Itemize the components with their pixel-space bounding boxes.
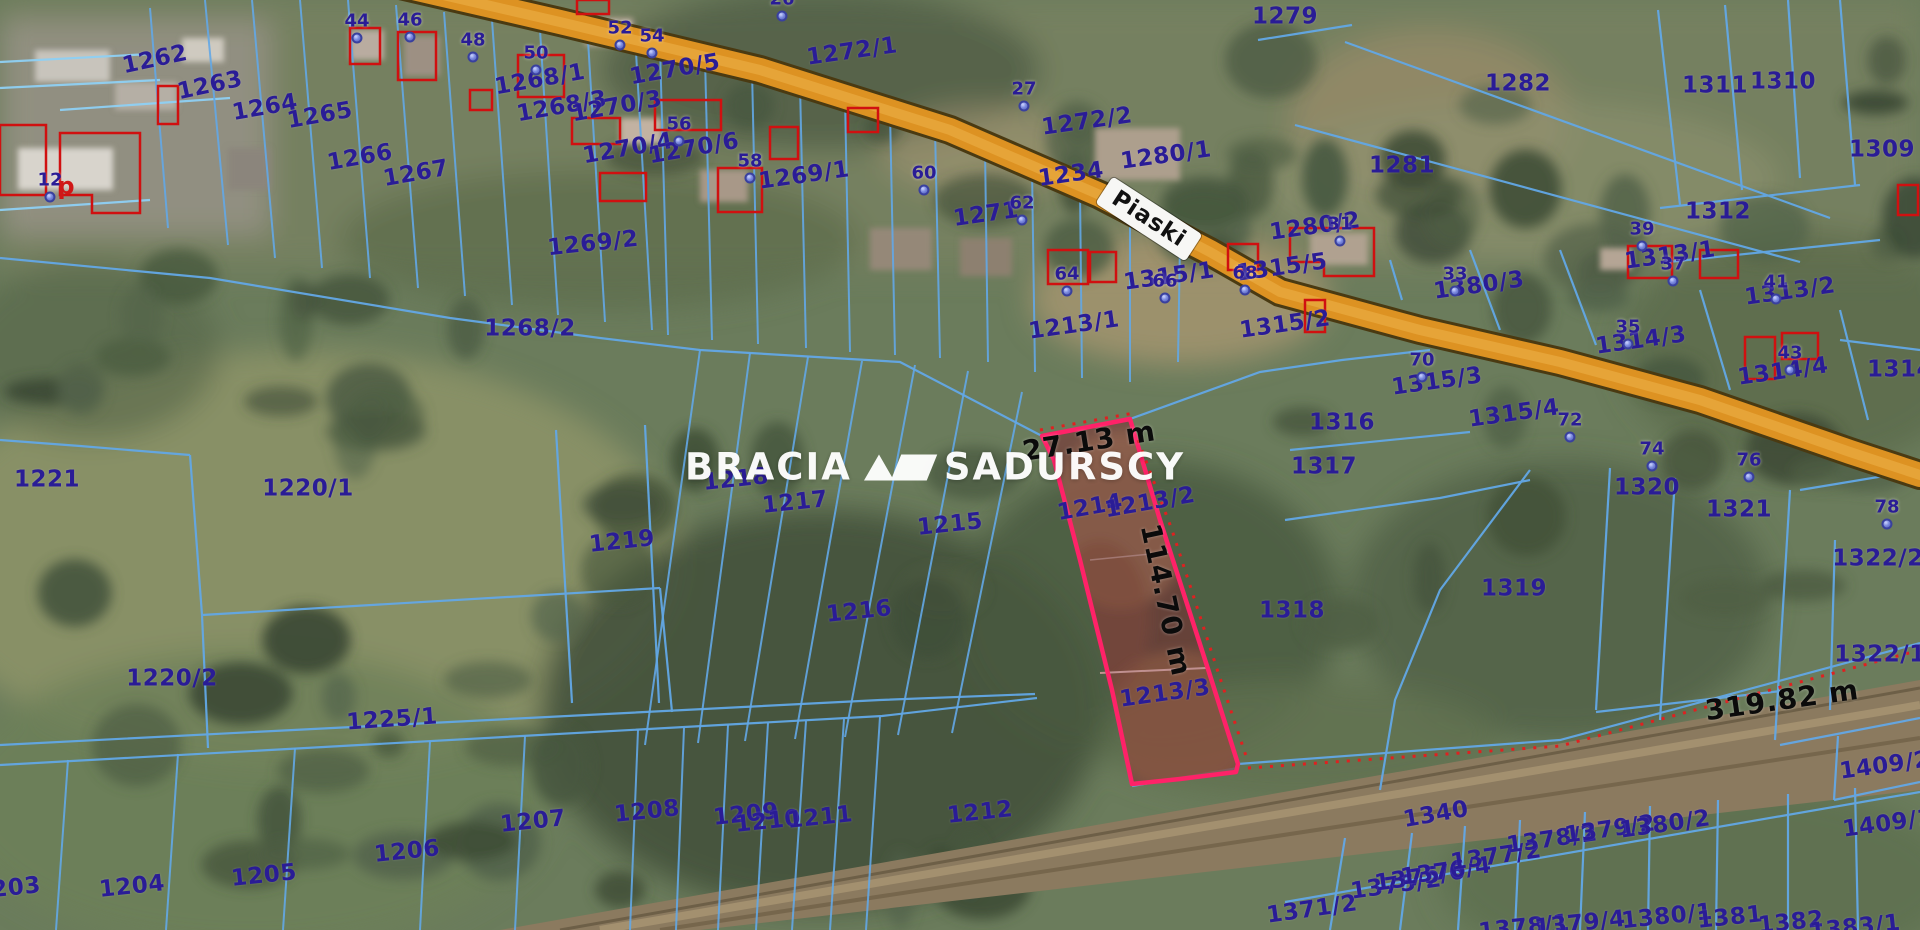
address-point-icon — [1417, 372, 1428, 383]
address-number: 60 — [911, 165, 936, 183]
parcel-label-1312: 1312 — [1685, 201, 1751, 224]
address-number: 52 — [607, 20, 632, 38]
address-number: 33 — [1442, 266, 1467, 284]
address-point-icon — [1637, 241, 1648, 252]
address-point-icon — [647, 48, 658, 59]
address-number: 37 — [1660, 256, 1685, 274]
address-point-72: 72 — [1557, 412, 1582, 443]
parcel-label-1319: 1319 — [1481, 578, 1547, 601]
address-point-icon — [1623, 339, 1634, 350]
address-point-48: 48 — [460, 32, 485, 63]
address-point-icon — [405, 32, 416, 43]
watermark-text-sadurscy: SADURSCY — [944, 446, 1185, 489]
address-point-icon — [674, 136, 685, 147]
address-number: 39 — [1629, 221, 1654, 239]
parcel-label-1322-2: 1322/2 — [1832, 548, 1920, 571]
parcel-label-1268-2: 1268/2 — [484, 318, 575, 341]
address-point-icon — [352, 33, 363, 44]
address-point-icon — [45, 192, 56, 203]
parcel-label-1317: 1317 — [1291, 456, 1357, 479]
parcel-label-1311: 1311 — [1682, 75, 1748, 98]
address-point-56: 56 — [666, 116, 691, 147]
address-point-icon — [1450, 286, 1461, 297]
address-number: 41 — [1763, 274, 1788, 292]
address-point-icon — [919, 185, 930, 196]
address-point-76: 76 — [1736, 452, 1761, 483]
address-point-58: 58 — [737, 153, 762, 184]
address-point-33: 33 — [1442, 266, 1467, 297]
address-point-icon — [1017, 215, 1028, 226]
watermark-triangle-icon — [864, 454, 894, 480]
parcel-label-1320: 1320 — [1614, 477, 1680, 500]
agency-watermark: BRACIA SADURSCY — [685, 446, 1185, 489]
address-number: 48 — [460, 32, 485, 50]
address-point-icon — [1019, 101, 1030, 112]
parcel-label-1314: 1314 — [1867, 359, 1920, 382]
parcel-label-1321: 1321 — [1706, 499, 1772, 522]
address-point-26: 26 — [769, 0, 794, 22]
address-point-46: 46 — [397, 12, 422, 43]
address-number: 68 — [1232, 265, 1257, 283]
address-point-41: 41 — [1763, 274, 1788, 305]
address-point-31: 31 — [1327, 216, 1352, 247]
address-point-icon — [1160, 293, 1171, 304]
address-number: 58 — [737, 153, 762, 171]
address-number: 46 — [397, 12, 422, 30]
address-number: 43 — [1777, 345, 1802, 363]
address-point-icon — [1565, 432, 1576, 443]
address-point-44: 44 — [344, 13, 369, 44]
address-point-70: 70 — [1409, 352, 1434, 383]
address-point-37: 37 — [1660, 256, 1685, 287]
parcel-label-1220-2: 1220/2 — [126, 668, 217, 691]
address-point-icon — [468, 52, 479, 63]
parcel-label-1225-1: 1225/1 — [346, 705, 439, 734]
address-point-icon — [531, 65, 542, 76]
parcel-label-1279: 1279 — [1252, 6, 1318, 29]
parcel-label-1381: 1381 — [1696, 903, 1764, 930]
address-number: 50 — [523, 45, 548, 63]
address-point-52: 52 — [607, 20, 632, 51]
address-point-icon — [1647, 461, 1658, 472]
address-point-icon — [745, 173, 756, 184]
address-point-39: 39 — [1629, 221, 1654, 252]
address-number: 26 — [769, 0, 794, 9]
address-number: 31 — [1327, 216, 1352, 234]
address-number: 78 — [1874, 499, 1899, 517]
address-point-icon — [1744, 472, 1755, 483]
address-number: 72 — [1557, 412, 1582, 430]
watermark-text-bracia: BRACIA — [685, 446, 852, 489]
address-point-62: 62 — [1009, 195, 1034, 226]
address-point-74: 74 — [1639, 441, 1664, 472]
parcel-label-1318: 1318 — [1259, 600, 1325, 623]
address-number: 35 — [1615, 319, 1640, 337]
watermark-parallelogram-icon — [891, 454, 938, 480]
parcel-label-1310: 1310 — [1750, 71, 1816, 94]
address-number: 76 — [1736, 452, 1761, 470]
cadastral-satellite-map[interactable]: 1262126312641265126612671268/11268/31270… — [0, 0, 1920, 930]
address-point-icon — [1062, 286, 1073, 297]
address-point-68: 68 — [1232, 265, 1257, 296]
address-number: 74 — [1639, 441, 1664, 459]
address-point-64: 64 — [1054, 266, 1079, 297]
poi-label: p — [57, 172, 74, 200]
address-point-43: 43 — [1777, 345, 1802, 376]
address-point-66: 66 — [1152, 273, 1177, 304]
address-point-icon — [1771, 294, 1782, 305]
address-point-50: 50 — [523, 45, 548, 76]
address-number: 54 — [639, 28, 664, 46]
address-point-35: 35 — [1615, 319, 1640, 350]
address-point-icon — [615, 40, 626, 51]
address-point-icon — [1335, 236, 1346, 247]
address-point-icon — [1785, 365, 1796, 376]
address-point-icon — [1668, 276, 1679, 287]
parcel-label-1220-1: 1220/1 — [262, 478, 353, 501]
address-point-icon — [777, 11, 788, 22]
address-point-icon — [1882, 519, 1893, 530]
address-number: 27 — [1011, 81, 1036, 99]
parcel-label-1221: 1221 — [14, 469, 80, 492]
address-point-78: 78 — [1874, 499, 1899, 530]
address-point-27: 27 — [1011, 81, 1036, 112]
address-number: 64 — [1054, 266, 1079, 284]
parcel-label-1316: 1316 — [1309, 412, 1375, 435]
address-number: 56 — [666, 116, 691, 134]
address-point-60: 60 — [911, 165, 936, 196]
address-number: 62 — [1009, 195, 1034, 213]
address-number: 70 — [1409, 352, 1434, 370]
address-point-icon — [1240, 285, 1251, 296]
parcel-label-1322-1: 1322/1 — [1834, 644, 1920, 667]
parcel-label-1281: 1281 — [1369, 155, 1435, 178]
address-number: 44 — [344, 13, 369, 31]
address-number: 66 — [1152, 273, 1177, 291]
address-point-54: 54 — [639, 28, 664, 59]
parcel-label-1282: 1282 — [1485, 73, 1551, 96]
parcel-label-1309: 1309 — [1849, 139, 1915, 162]
